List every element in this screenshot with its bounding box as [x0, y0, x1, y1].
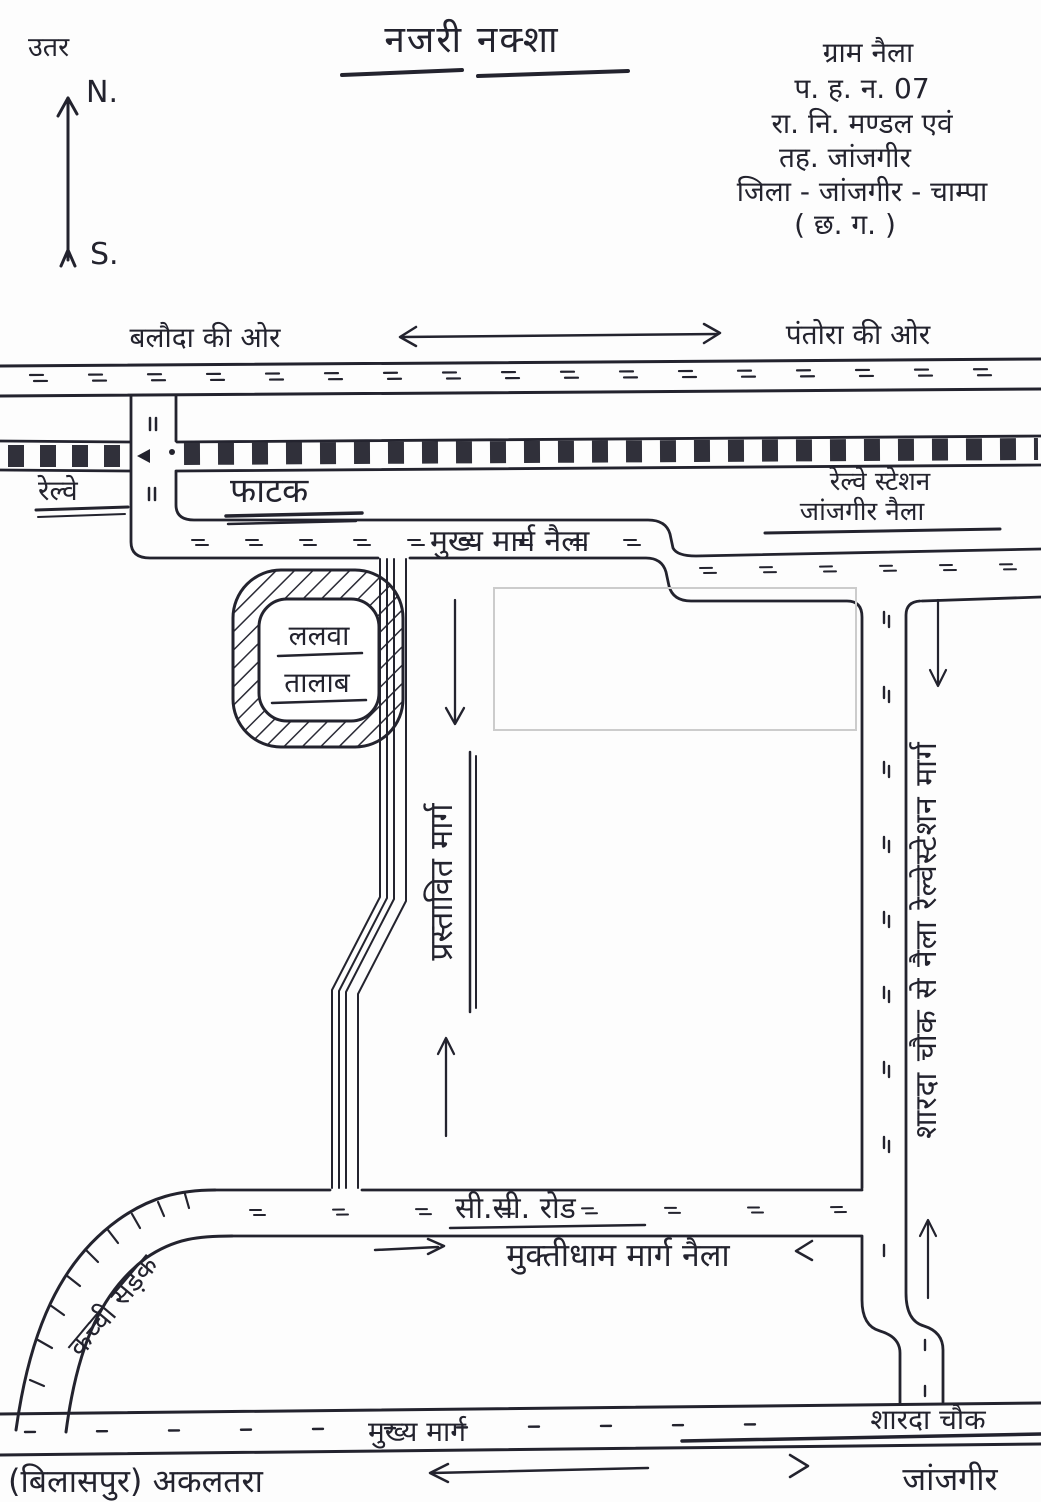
- proposed-road-label: प्रस्तावित मार्ग: [422, 802, 460, 960]
- top-road-dashes: [30, 369, 1020, 375]
- main-road-naila-label: मुख्य मार्ग नैला: [430, 524, 591, 560]
- crossing-gate-marker: [137, 449, 150, 463]
- cc-road-label: सी.सी. रोड: [455, 1191, 577, 1226]
- station-label-line1: रेल्वे स्टेशन: [829, 466, 931, 497]
- pond-label-line2: तालाब: [284, 666, 350, 699]
- kachchi-sadak-label: कच्ची सड़क: [61, 1248, 165, 1363]
- sharda-chowk-label: शारदा चौक: [870, 1403, 986, 1436]
- station-name-block: रेल्वे स्टेशन जांजगीर नैला: [765, 466, 1000, 533]
- akaltara-arrow-left: [432, 1468, 648, 1473]
- hand-drawn-sketch-map: उतर N. S. नजरी नक्शा ग्राम नैला प. ह. न.…: [0, 0, 1041, 1502]
- janjgir-arrow-right: [790, 1455, 808, 1477]
- gate-label-underline: [226, 513, 362, 516]
- station-road-labels: शारदा चौक से नैला रेल्वेस्टेशन मार्ग: [909, 600, 946, 1298]
- muktidham-arrow-right: [375, 1247, 438, 1250]
- address-line-2: प. ह. न. 07: [794, 72, 929, 105]
- crossing-road-ticks: [149, 418, 156, 500]
- gate-label: फाटक: [230, 471, 309, 511]
- railway-label: रेल्वे: [37, 474, 78, 507]
- muktidham-arrow-left: [796, 1241, 812, 1260]
- map-title-block: नजरी नक्शा: [342, 18, 628, 76]
- compass-rose: उतर N. S.: [28, 32, 119, 272]
- crossing-dot: [169, 449, 175, 455]
- address-line-1: ग्राम नैला: [823, 36, 914, 69]
- pond-label-line1: ललवा: [289, 619, 351, 652]
- top-road: [0, 359, 1041, 396]
- title-underline-2: [478, 71, 628, 76]
- address-line-5: जिला - जांजगीर - चाम्पा: [737, 175, 988, 208]
- direction-labels: बलौदा की ओर पंतोरा की ओर: [130, 318, 931, 354]
- kachchi-sadak-curve: कच्ची सड़क: [16, 1190, 232, 1432]
- station-road-label: शारदा चौक से नैला रेल्वेस्टेशन मार्ग: [909, 741, 944, 1139]
- bilaspur-akaltara-label: (बिलासपुर) अकलतरा: [8, 1462, 264, 1501]
- sharda-chowk-underline: [682, 1434, 1041, 1441]
- direction-left-label: बलौदा की ओर: [130, 321, 282, 354]
- address-line-3: रा. नि. मण्डल एवं: [771, 107, 952, 140]
- address-block: ग्राम नैला प. ह. न. 07 रा. नि. मण्डल एवं…: [737, 36, 988, 241]
- station-label-line2: जांजगीर नैला: [800, 496, 926, 527]
- pond-lalwa-talab: ललवा तालाब: [233, 570, 403, 747]
- cc-road: सी.सी. रोड मुक्तीधाम मार्ग नैला: [215, 1190, 862, 1275]
- direction-double-arrow: [402, 334, 718, 337]
- compass-label-uttar: उतर: [28, 32, 70, 63]
- railway-label-underline: [36, 507, 128, 510]
- bottom-main-road: मुख्य मार्ग शारदा चौक (बिलासपुर) अकलतरा …: [0, 1403, 1041, 1501]
- address-line-4: तह. जांजगीर: [779, 141, 911, 174]
- railway-sleepers-right: [184, 449, 1038, 454]
- page-title: नजरी नक्शा: [384, 18, 559, 61]
- compass-label-s: S.: [90, 237, 119, 272]
- faint-pencil-plot-outline: [494, 588, 856, 730]
- compass-label-n: N.: [86, 75, 118, 110]
- station-label-underline: [765, 529, 1000, 533]
- bottom-main-road-label: मुख्य मार्ग: [368, 1415, 467, 1449]
- direction-right-label: पंतोरा की ओर: [786, 318, 931, 351]
- janjgir-label: जांजगीर: [902, 1460, 998, 1498]
- address-line-6: ( छ. ग. ): [794, 208, 896, 241]
- map-canvas: उतर N. S. नजरी नक्शा ग्राम नैला प. ह. न.…: [0, 0, 1041, 1502]
- title-underline-1: [342, 70, 462, 75]
- muktidham-road-label: मुक्तीधाम मार्ग नैला: [506, 1236, 730, 1275]
